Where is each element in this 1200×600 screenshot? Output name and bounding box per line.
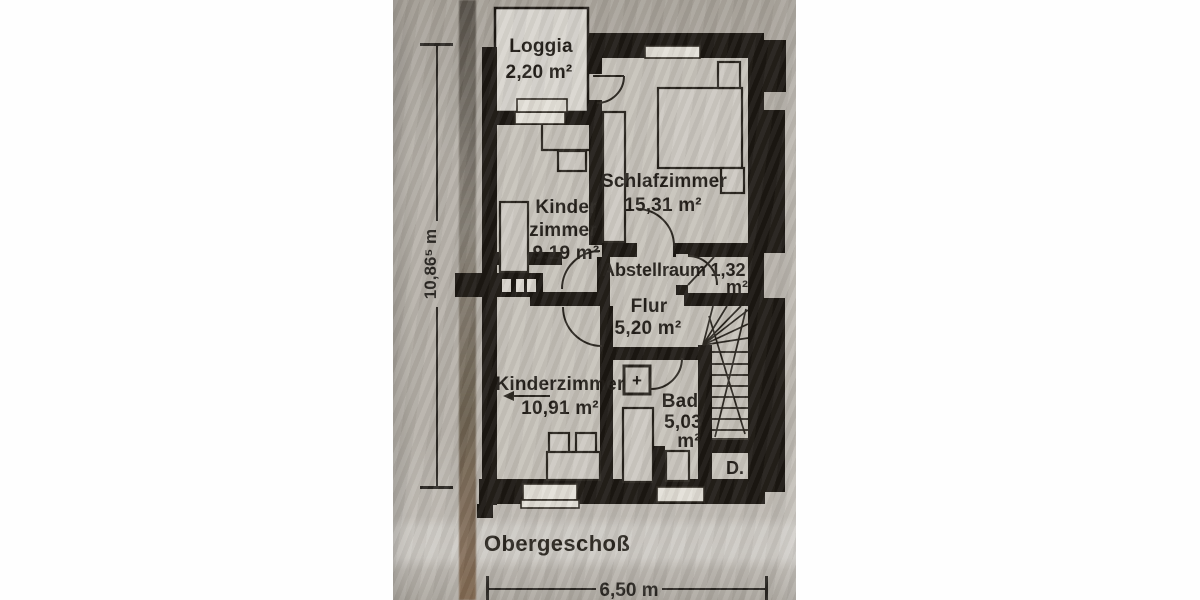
chair-1-kinderzimmer-unten	[549, 433, 569, 453]
label-abstellraum-unit: m²	[726, 277, 748, 297]
chair-2-kinderzimmer-unten	[576, 433, 596, 453]
bed-schlafzimmer	[658, 88, 742, 168]
bathtub-bad	[623, 408, 653, 482]
label-abstellraum-name: Abstellraum	[602, 260, 706, 280]
label-flur-name: Flur	[631, 296, 668, 317]
wall-party-mid-block	[764, 110, 785, 253]
chair-kinderzimmer-oben	[558, 151, 586, 171]
chimney-flue-3	[527, 279, 536, 292]
label-bad-unit: m²	[677, 431, 701, 452]
window-kinderzimmer-unten	[523, 484, 577, 500]
label-kinderzimmer-unten-name: Kinderzimmer	[495, 374, 625, 395]
door-opening-schlafzimmer	[637, 243, 673, 257]
scanned-floor-plan-page: Loggia 2,20 m² Schlafzimmer 15,31 m² Kin…	[0, 0, 1200, 600]
chimney-flue-1	[502, 279, 511, 292]
dim-width-value: 6,50 m	[599, 580, 658, 600]
dimension-height: 10,86⁵ m	[420, 43, 453, 489]
wall-bottom-left-stub	[477, 504, 493, 518]
label-bad-value: 5,03	[664, 412, 702, 433]
label-loggia-area: 2,20 m²	[506, 62, 573, 83]
window-sill-loggia	[517, 99, 567, 112]
wall-stub-bad	[653, 446, 665, 483]
label-kinderzimmer-oben-area: 9,19 m²	[533, 243, 600, 264]
floor-title: Obergeschoß	[484, 531, 630, 556]
desk-kinderzimmer-unten	[547, 452, 600, 480]
label-loggia-name: Loggia	[509, 36, 573, 57]
wall-loggia-schlafzimmer-upper	[589, 58, 602, 74]
label-kinderzimmer-oben-line1: Kinder	[535, 197, 597, 218]
toilet-bad	[666, 451, 689, 481]
label-schlafzimmer-name: Schlafzimmer	[601, 171, 727, 192]
window-loggia-kinderzimmer	[515, 112, 565, 124]
label-schlafzimmer-area: 15,31 m²	[624, 195, 702, 216]
window-schlafzimmer	[645, 46, 700, 58]
wall-party-low-block	[764, 298, 785, 492]
wall-flur-kinderzimmer-unten	[530, 292, 610, 306]
wall-treppe-abgang	[700, 440, 750, 453]
dim-height-value: 10,86⁵ m	[421, 229, 440, 299]
label-abgang: D.	[726, 458, 744, 478]
window-sill-kinderzimmer-unten	[521, 500, 579, 508]
wall-flur-bad	[613, 347, 699, 360]
wall-right-exterior	[748, 33, 764, 492]
wall-kinderzimmer-bad	[600, 306, 613, 492]
label-flur-area: 5,20 m²	[615, 318, 682, 339]
label-kinderzimmer-unten-area: 10,91 m²	[521, 398, 599, 419]
dimension-width: 6,50 m	[486, 576, 768, 600]
nightstand-top	[718, 62, 740, 88]
floor-plan-drawing: Loggia 2,20 m² Schlafzimmer 15,31 m² Kin…	[0, 0, 1200, 600]
wardrobe-kinderzimmer-oben	[500, 202, 528, 272]
room-loggia	[495, 8, 588, 112]
label-kinderzimmer-oben-line2: zimmer	[529, 220, 597, 241]
wall-party-top-block	[764, 40, 786, 92]
washbasin-cross-symbol: +	[632, 371, 642, 390]
chimney-flue-2	[516, 279, 524, 292]
window-bad	[657, 487, 704, 502]
label-bad-name: Bad	[662, 391, 699, 412]
